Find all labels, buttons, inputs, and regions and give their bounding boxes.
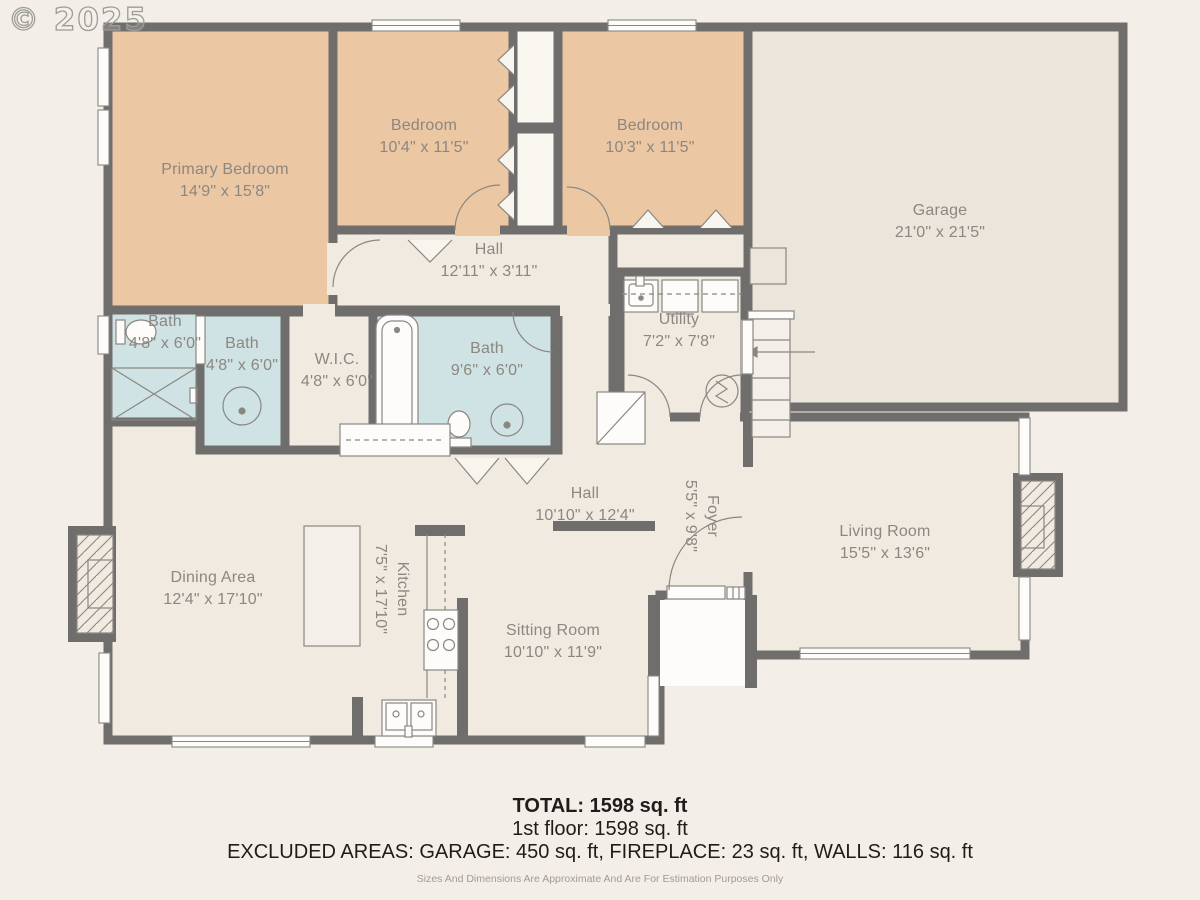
garage-bench (750, 248, 786, 284)
window-icon (1019, 577, 1030, 640)
sidelight-icon (727, 587, 745, 599)
stairs-landing (748, 311, 794, 319)
room-label-hall-upper: Hall12'11" x 3'11" (440, 239, 537, 283)
room-label-bath-2: Bath4'8" x 6'0" (206, 333, 278, 377)
toilet-icon (448, 411, 470, 437)
window-icon (98, 316, 109, 354)
front-door-leaf (667, 586, 725, 599)
room-label-sitting-room: Sitting Room10'10" x 11'9" (504, 620, 602, 664)
room-label-bath-3: Bath9'6" x 6'0" (451, 338, 523, 382)
room-label-hall-lower: Hall10'10" x 12'4" (535, 483, 634, 527)
area-summary: TOTAL: 1598 sq. ft 1st floor: 1598 sq. f… (0, 795, 1200, 885)
fireplace-right (1013, 473, 1063, 577)
window-icon (585, 736, 645, 747)
garage-door-leaf (742, 320, 753, 374)
window-icon (1019, 418, 1030, 475)
fireplace-left (68, 526, 116, 642)
room-label-living-room: Living Room15'5" x 13'6" (839, 521, 930, 565)
window-icon (375, 736, 433, 747)
total-area-text: TOTAL: 1598 sq. ft (0, 795, 1200, 818)
room-label-bedroom-1: Bedroom10'4" x 11'5" (379, 115, 468, 159)
disclaimer-text: Sizes And Dimensions Are Approximate And… (0, 873, 1200, 885)
front-porch (660, 600, 745, 686)
bedroom2-closet (613, 230, 748, 272)
room-label-wic: W.I.C.4'8" x 6'0" (301, 349, 373, 393)
closet-strip-top (513, 27, 558, 127)
window-icon (99, 653, 110, 723)
kitchen-island (304, 526, 360, 646)
room-label-primary-bedroom: Primary Bedroom14'9" x 15'8" (161, 159, 288, 203)
floor-plan: Primary Bedroom14'9" x 15'8" Bedroom10'4… (0, 0, 1200, 780)
first-floor-area-text: 1st floor: 1598 sq. ft (0, 818, 1200, 841)
excluded-areas-text: EXCLUDED AREAS: GARAGE: 450 sq. ft, FIRE… (0, 841, 1200, 864)
toilet-icon (116, 320, 125, 344)
room-label-utility: Utility7'2" x 7'8" (643, 309, 715, 353)
dryer-icon (702, 280, 738, 312)
room-label-bedroom-2: Bedroom10'3" x 11'5" (605, 115, 694, 159)
stove-icon (424, 610, 458, 670)
room-label-foyer: Foyer5'5" x 9'8" (679, 480, 723, 552)
faucet-icon (405, 726, 412, 737)
washer-icon (662, 280, 698, 312)
room-label-dining-area: Dining Area12'4" x 17'10" (163, 567, 262, 611)
room-label-bath-1: Bath4'8" x 6'0" (129, 311, 201, 355)
closet-strip-bottom (513, 129, 558, 230)
copyright-watermark: © 2025 (8, 2, 148, 38)
window-icon (98, 110, 109, 165)
room-label-garage: Garage21'0" x 21'5" (895, 200, 985, 244)
faucet-icon (636, 276, 644, 286)
window-icon (648, 676, 659, 736)
window-icon (98, 48, 109, 106)
room-label-kitchen: Kitchen7'5" x 17'10" (369, 544, 413, 634)
